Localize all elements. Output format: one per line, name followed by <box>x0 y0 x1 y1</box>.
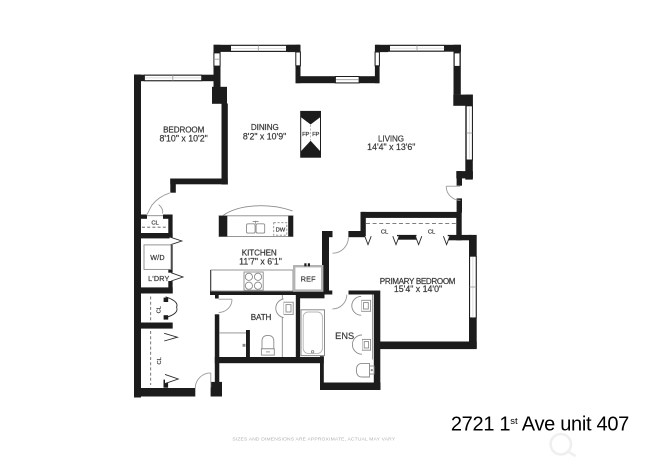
svg-text:15'4" x 14'0": 15'4" x 14'0" <box>394 284 442 294</box>
svg-text:CL: CL <box>156 305 162 313</box>
svg-text:ENS: ENS <box>335 331 354 341</box>
svg-text:CL: CL <box>157 356 163 364</box>
svg-text:11'7" x 6'1": 11'7" x 6'1" <box>239 257 282 267</box>
svg-text:REF: REF <box>301 274 316 283</box>
svg-text:SIZES AND DIMENSIONS ARE APPRO: SIZES AND DIMENSIONS ARE APPROXIMATE, AC… <box>232 436 396 442</box>
svg-text:8'2" x 10'9": 8'2" x 10'9" <box>243 131 286 141</box>
svg-text:2721 1st Ave unit 407: 2721 1st Ave unit 407 <box>451 413 629 435</box>
svg-text:8'10" x 10'2": 8'10" x 10'2" <box>159 133 207 143</box>
svg-text:FP: FP <box>302 132 309 138</box>
svg-text:BATH: BATH <box>251 313 272 322</box>
svg-text:14'4" x 13'6": 14'4" x 13'6" <box>367 142 415 152</box>
svg-text:L'DRY: L'DRY <box>148 274 169 283</box>
svg-text:W/D: W/D <box>150 253 165 262</box>
svg-text:DW: DW <box>276 228 286 234</box>
svg-text:CL: CL <box>381 230 389 236</box>
svg-text:FP: FP <box>312 132 319 138</box>
svg-text:CL: CL <box>151 221 159 227</box>
svg-text:CL: CL <box>428 230 436 236</box>
